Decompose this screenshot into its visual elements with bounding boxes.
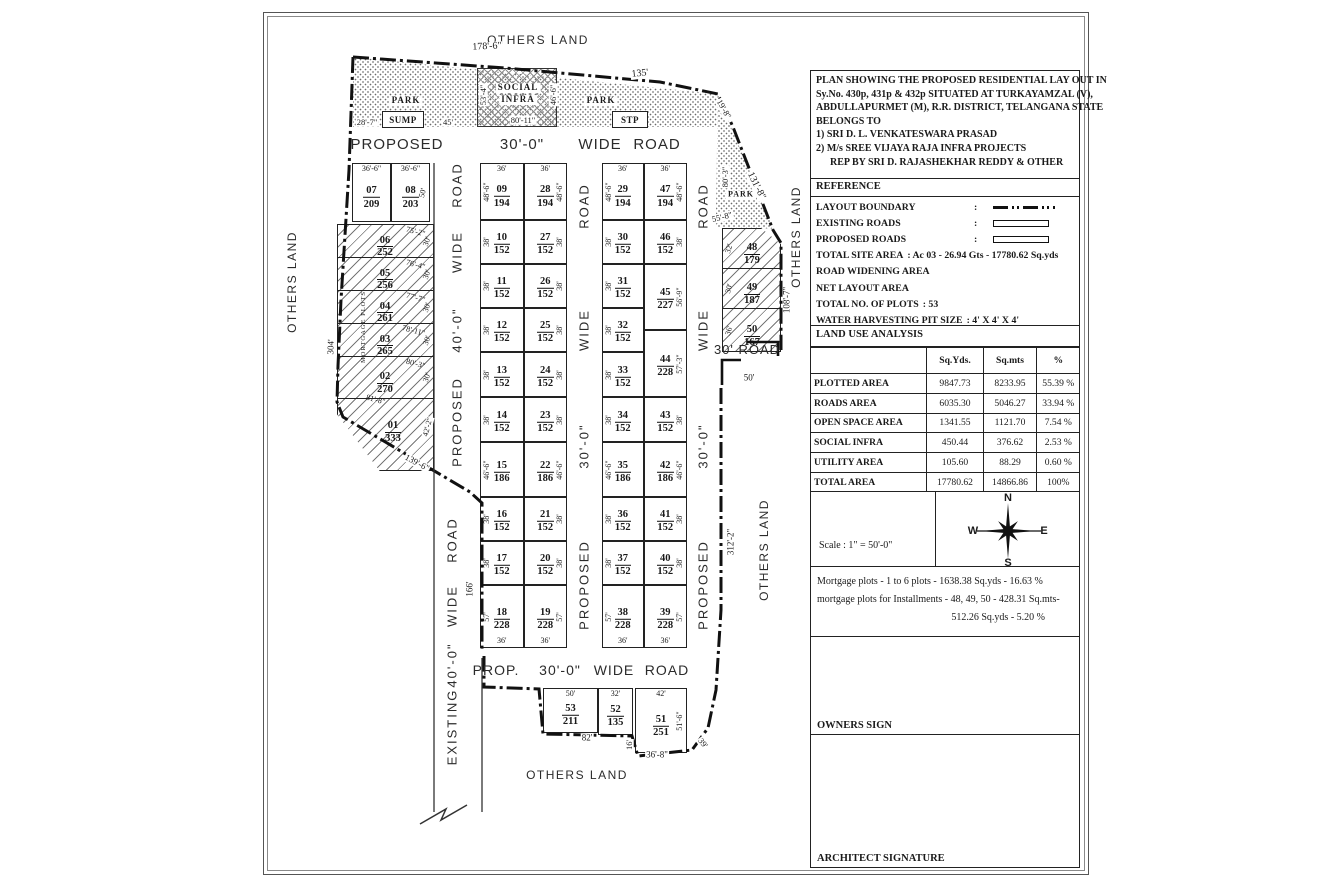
park-label: PARK xyxy=(390,96,423,106)
plot-number: 45 xyxy=(657,287,674,300)
plot-side-dim: 38' xyxy=(676,397,684,443)
plot-number: 36 xyxy=(615,509,632,522)
mortgage-note-line: mortgage plots for Installments - 48, 49… xyxy=(817,591,1073,609)
dimension-label-right-108-7: 108'-7" xyxy=(783,286,792,314)
table-cell: 5046.27 xyxy=(984,394,1037,414)
plot-cell: 2615238' xyxy=(524,264,568,308)
plot-number: 01 xyxy=(385,420,402,433)
reference-item: NET LAYOUT AREA xyxy=(816,280,1074,296)
plot-cell: 1715238' xyxy=(480,541,524,585)
reference-item-label: WATER HARVESTING PIT SIZE xyxy=(816,315,963,326)
architect-signature-section: ARCHITECT SIGNATURE xyxy=(810,735,1080,868)
plot-side-dim: 38' xyxy=(483,263,491,309)
plot-side-dim: 38' xyxy=(556,263,564,309)
road-label-top: WIDE xyxy=(578,136,621,153)
plot-number-area: 53211 xyxy=(544,697,597,727)
plot-number: 12 xyxy=(494,320,511,333)
table-row-label: SOCIAL INFRA xyxy=(811,433,927,453)
plot-number-area: 04261 xyxy=(368,296,402,325)
plot-cell: 3715238' xyxy=(602,541,644,585)
reference-item-value: : Ac 03 - 26.94 Gts - 17780.62 Sq.yds xyxy=(907,250,1058,261)
plot-number: 44 xyxy=(657,353,674,366)
plot-cell: 36'-6"07209 xyxy=(352,163,391,222)
plot-cell: 50'53211 xyxy=(543,688,598,733)
plot-number: 13 xyxy=(494,364,511,377)
plot-number: 38 xyxy=(615,606,632,619)
mortgage-plot-row: 0426177'-7"30' xyxy=(338,291,433,324)
plot-side-dim: 32' xyxy=(723,243,734,254)
plot-cell: 2415238' xyxy=(524,352,568,397)
plot-side-dim: 38' xyxy=(605,263,613,309)
table-cell: 100% xyxy=(1037,473,1080,493)
road-label-right: 30'-0" xyxy=(696,423,711,468)
table-row-label: TOTAL AREA xyxy=(811,473,927,493)
road-label-top: 30'-0" xyxy=(500,136,544,153)
plot-cell: 1315238' xyxy=(480,352,524,397)
dimension-label-si-80-11: 80'-11" xyxy=(510,116,537,125)
plot-side-dim: 38' xyxy=(483,219,491,265)
road-label-left_upper: PROPOSED xyxy=(450,377,465,467)
mortgage-plot-row: 0525676'-4"30' xyxy=(338,258,433,291)
plot-side-dim: 38' xyxy=(556,307,564,353)
road-label-mid: 30'-0" xyxy=(577,423,592,468)
dimension-label-bottom-16: 16' xyxy=(625,739,634,751)
plot-side-dim: 57' xyxy=(605,594,613,640)
plot-cell: 3822857'36' xyxy=(602,585,644,648)
plot-side-dim: 57'-3" xyxy=(676,341,684,387)
mortgage-note-line: 512.26 Sq.yds - 5.20 % xyxy=(817,609,1073,627)
plot-cell: 3922857'36' xyxy=(644,585,688,648)
table-header-cell: Sq.Yds. xyxy=(927,348,984,374)
plot-number: 27 xyxy=(537,232,554,245)
road-label-left_lower: 40'-0" xyxy=(445,642,460,687)
dimension-label-si-53-4: 53'-4" xyxy=(479,84,488,107)
social-infra-label: SOCIAL xyxy=(496,83,541,93)
plot-area: 261 xyxy=(368,313,402,325)
plot-number: 18 xyxy=(494,606,511,619)
road-label-right: PROPOSED xyxy=(696,540,711,630)
plot-area: 265 xyxy=(368,346,402,358)
plot-side-dim: 38' xyxy=(605,352,613,398)
table-row-label: UTILITY AREA xyxy=(811,453,927,473)
plot-number-area: 06252 xyxy=(368,230,402,259)
plot-cell: 36'4719448'-6" xyxy=(644,163,688,220)
dimension-label-boundary-178-6: 178'-6" xyxy=(471,41,503,53)
plot-side-dim: 46'-6" xyxy=(556,447,564,493)
plot-side-dim: 57' xyxy=(556,594,564,640)
plot-side-dim: 38' xyxy=(483,307,491,353)
plot-cell: 2715238' xyxy=(524,220,568,264)
plot-cell: 3315238' xyxy=(602,352,644,397)
dimension-label-left-304: 304' xyxy=(326,338,336,355)
plot-cell: 1922857'36' xyxy=(524,585,568,648)
plot-area: 187 xyxy=(737,295,767,307)
plot-side-dim: 38' xyxy=(483,540,491,586)
table-row-label: PLOTTED AREA xyxy=(811,374,927,394)
dimension-label-si-46-6: 46'-6" xyxy=(549,84,558,107)
land-use-header: LAND USE ANALYSIS xyxy=(810,326,1080,347)
reference-item: TOTAL SITE AREA: Ac 03 - 26.94 Gts - 177… xyxy=(816,248,1074,264)
plot-side-dim: 38' xyxy=(605,307,613,353)
plot-number: 21 xyxy=(537,509,554,522)
reference-header: REFERENCE xyxy=(810,179,1080,197)
mortgage-plot-row: 0625275'-2"30' xyxy=(338,225,433,258)
plot-cell: 2515238' xyxy=(524,308,568,352)
plot-top-dim: 32' xyxy=(599,690,632,699)
architect-signature-label: ARCHITECT SIGNATURE xyxy=(817,853,945,864)
plot-cell: 1415238' xyxy=(480,397,524,442)
table-cell: 6035.30 xyxy=(927,394,984,414)
plot-cell: 1015238' xyxy=(480,220,524,264)
road-label-top: ROAD xyxy=(633,136,680,153)
road-label-left_upper: 40'-0" xyxy=(450,307,465,352)
plot-number: 37 xyxy=(615,553,632,566)
description-line: 2) M/s SREE VIJAYA RAJA INFRA PROJECTS xyxy=(816,142,1074,156)
plot-side-dim: 38' xyxy=(605,219,613,265)
road-bar-icon xyxy=(993,236,1049,243)
reference-item: PROPOSED ROADS: xyxy=(816,231,1074,247)
dimension-label-sump-45: 45' xyxy=(442,118,454,127)
table-cell: 17780.62 xyxy=(927,473,984,493)
plot-area: 135 xyxy=(599,717,632,729)
table-cell: 1341.55 xyxy=(927,414,984,434)
others-land-label-bottom: OTHERS LAND xyxy=(526,768,628,782)
plot-number: 06 xyxy=(377,235,394,248)
plot-side-dim: 38' xyxy=(483,352,491,398)
road-bar-icon xyxy=(993,220,1049,227)
reference-item-label: NET LAYOUT AREA xyxy=(816,283,909,294)
reference-item: LAYOUT BOUNDARY: xyxy=(816,199,1074,215)
description-line: 1) SRI D. L. VENKATESWARA PRASAD xyxy=(816,128,1074,142)
plot-side-dim: 38' xyxy=(676,496,684,542)
reference-item-label: EXISTING ROADS xyxy=(816,218,974,229)
plot-number: 40 xyxy=(657,553,674,566)
plot-side-dim: 38' xyxy=(676,219,684,265)
mortgage-plot-row: 0227080'-3"30' xyxy=(338,357,433,399)
plot-number: 05 xyxy=(377,268,394,281)
reference-item-label: TOTAL SITE AREA xyxy=(816,250,903,261)
reference-list: LAYOUT BOUNDARY:EXISTING ROADS:PROPOSED … xyxy=(810,197,1080,326)
road-label-bottom: WIDE xyxy=(594,662,635,678)
plot-side-dim: 57' xyxy=(676,594,684,640)
plot-cell: 1215238' xyxy=(480,308,524,352)
stp-box: STP xyxy=(612,111,648,128)
table-cell: 7.54 % xyxy=(1037,414,1080,434)
plot-cell: 2115238' xyxy=(524,497,568,541)
plot-number-area: 48179 xyxy=(737,237,767,266)
reference-item: TOTAL NO. OF PLOTS: 53 xyxy=(816,296,1074,312)
plot-area: 333 xyxy=(376,433,410,445)
plot-number: 25 xyxy=(537,320,554,333)
plot-cell: 3215238' xyxy=(602,308,644,352)
dimension-label-bottom-36-8: 36'-8" xyxy=(645,751,669,760)
reference-item-label: TOTAL NO. OF PLOTS xyxy=(816,299,919,310)
plot-number: 10 xyxy=(494,232,511,245)
reference-item-label: LAYOUT BOUNDARY xyxy=(816,202,974,213)
plot-number: 23 xyxy=(537,409,554,422)
table-cell: 9847.73 xyxy=(927,374,984,394)
plot-side-dim: 38' xyxy=(556,219,564,265)
plot-number: 04 xyxy=(377,301,394,314)
reference-item: EXISTING ROADS: xyxy=(816,215,1074,231)
reference-item-label: PROPOSED ROADS xyxy=(816,234,974,245)
plot-number: 11 xyxy=(494,276,510,289)
plot-side-dim: 48'-6" xyxy=(605,169,613,215)
plot-side-dim: 38' xyxy=(556,496,564,542)
plot-number: 39 xyxy=(657,606,674,619)
plot-side-dim: 38' xyxy=(676,540,684,586)
plot-cell: 4615238' xyxy=(644,220,688,264)
plot-side-dim: 36' xyxy=(723,325,734,336)
road-label-left_lower: ROAD xyxy=(445,517,460,563)
mortgage-plot-row: 0326578'-11"30' xyxy=(338,324,433,357)
plot-number: 26 xyxy=(537,276,554,289)
plot-cell: 3615238' xyxy=(602,497,644,541)
plot-side-dim: 38' xyxy=(483,397,491,443)
plot-number: 53 xyxy=(562,702,579,715)
road-label-top: PROPOSED xyxy=(350,136,443,153)
plot-side-dim: 38' xyxy=(556,397,564,443)
road-label-mid: PROPOSED xyxy=(577,540,592,630)
plot-number-area: 49187 xyxy=(737,277,767,306)
plot-cell: 1115238' xyxy=(480,264,524,308)
title-block-description: PLAN SHOWING THE PROPOSED RESIDENTIAL LA… xyxy=(810,70,1080,179)
plot-number: 16 xyxy=(494,509,511,522)
plot-area: 256 xyxy=(368,280,402,292)
road-label-mid: WIDE xyxy=(577,309,592,351)
plot-side-dim: 38' xyxy=(556,352,564,398)
plot-bottom-dim: 36' xyxy=(525,637,567,646)
others-land-label-left: OTHERS LAND xyxy=(285,231,299,333)
table-cell: 88.29 xyxy=(984,453,1037,473)
plot-cell: 1615238' xyxy=(480,497,524,541)
plot-cell: 32'52135 xyxy=(598,688,633,735)
compass-rose: N S W E xyxy=(971,494,1045,566)
plot-cell: 3015238' xyxy=(602,220,644,264)
plot-side-dim: 46'-6" xyxy=(605,447,613,493)
plot-number: 52 xyxy=(607,704,624,717)
plot-number: 47 xyxy=(657,184,674,197)
plot-slant-dim: 78'-11" xyxy=(401,323,426,338)
table-header-cell: Sq.mts xyxy=(984,348,1037,374)
reference-item-colon: : xyxy=(974,202,977,213)
description-line: PLAN SHOWING THE PROPOSED RESIDENTIAL LA… xyxy=(816,74,1074,88)
description-line: BELONGS TO xyxy=(816,115,1074,129)
table-cell: 8233.95 xyxy=(984,374,1037,394)
plot-side-dim: 38' xyxy=(605,397,613,443)
description-line: Sy.No. 430p, 431p & 432p SITUATED AT TUR… xyxy=(816,88,1074,102)
plot-cell: 4422857'-3" xyxy=(644,330,688,397)
reference-item-label: ROAD WIDENING AREA xyxy=(816,266,930,277)
plot-cell: 36'2819448'-6" xyxy=(524,163,568,220)
reference-item-colon: : xyxy=(974,234,977,245)
plot-side-dim: 38' xyxy=(556,540,564,586)
mortgage-plots-note: MORTGAGE PLOTS xyxy=(361,290,368,364)
plot-number-area: 07209 xyxy=(353,180,390,210)
plot-cell: 36'-6"0820350' xyxy=(391,163,430,222)
plot-number-area: 03265 xyxy=(368,329,402,358)
dashdot-line-icon xyxy=(993,206,1055,209)
social-infra-label: INFRA xyxy=(499,95,537,105)
plot-cell: 42'5125151'-6" xyxy=(635,688,687,753)
plot-number: 20 xyxy=(537,553,554,566)
compass-west-label: W xyxy=(968,525,978,537)
owners-sign-section: OWNERS SIGN xyxy=(810,637,1080,735)
plot-side-dim: 51'-6" xyxy=(676,698,684,744)
installment-plot-row: 4918730' xyxy=(723,269,780,309)
plot-number: 41 xyxy=(657,509,674,522)
plot-cell: 2015238' xyxy=(524,541,568,585)
table-row-label: ROADS AREA xyxy=(811,394,927,414)
plot-number-area: 52135 xyxy=(599,699,632,729)
road-label-bottom: PROP. xyxy=(473,662,520,678)
table-cell: 55.39 % xyxy=(1037,374,1080,394)
table-cell: 33.94 % xyxy=(1037,394,1080,414)
plot-cell: 3115238' xyxy=(602,264,644,308)
dimension-label-park-80-3: 80'-3" xyxy=(721,166,730,189)
plot-cell: 4115238' xyxy=(644,497,688,541)
land-use-table: Sq.Yds.Sq.mts%PLOTTED AREA9847.738233.95… xyxy=(810,347,1080,492)
reference-item: ROAD WIDENING AREA xyxy=(816,264,1074,280)
compass-east-label: E xyxy=(1040,525,1047,537)
plot-side-dim: 56'-9" xyxy=(676,274,684,320)
owners-sign-label: OWNERS SIGN xyxy=(817,720,892,731)
plot-side-dim: 38' xyxy=(483,496,491,542)
plot-number: 34 xyxy=(615,409,632,422)
plot-number: 22 xyxy=(537,459,554,472)
compass-north-label: N xyxy=(1004,492,1012,504)
plot-side-dim: 30' xyxy=(723,283,734,294)
plot-side-dim: 48'-6" xyxy=(676,169,684,215)
road-label-mid: ROAD xyxy=(577,183,592,229)
mortgage-note-line: Mortgage plots - 1 to 6 plots - 1638.38 … xyxy=(817,573,1073,591)
plot-number: 29 xyxy=(615,184,632,197)
plot-number: 50 xyxy=(744,324,761,337)
plot-number-area: 05256 xyxy=(368,263,402,292)
plot-number: 17 xyxy=(494,553,511,566)
dimension-label-right-312-2: 312'-2" xyxy=(727,528,736,556)
plot-cell: 4522756'-9" xyxy=(644,264,688,330)
reference-item-colon: : xyxy=(974,218,977,229)
plot-side-dim: 30' xyxy=(420,372,432,384)
plot-side-dim: 46'-6" xyxy=(483,447,491,493)
table-cell: 376.62 xyxy=(984,433,1037,453)
plot-side-dim: 46'-6" xyxy=(676,447,684,493)
park-label: PARK xyxy=(726,191,756,200)
dimension-label-bottom-82: 82' xyxy=(581,734,594,743)
plot-side-dim: 38' xyxy=(605,496,613,542)
plot-number: 02 xyxy=(377,371,394,384)
reference-item-value: : 4' X 4' X 4' xyxy=(967,315,1020,326)
plot-number: 14 xyxy=(494,409,511,422)
dimension-label-boundary-135: 135' xyxy=(630,68,650,80)
road-label-right: WIDE xyxy=(696,309,711,351)
plot-number: 49 xyxy=(744,282,761,295)
table-cell: 450.44 xyxy=(927,433,984,453)
table-cell: 1121.70 xyxy=(984,414,1037,434)
table-cell: 0.60 % xyxy=(1037,453,1080,473)
plot-side-dim: 38' xyxy=(605,540,613,586)
plot-side-dim: 48'-6" xyxy=(483,169,491,215)
plot-slant-dim: 80'-3" xyxy=(405,357,426,371)
table-header-cell: % xyxy=(1037,348,1080,374)
road-label-left_upper: WIDE xyxy=(450,231,465,273)
compass-star-icon xyxy=(971,494,1045,566)
plot-cell: 3518646'-6" xyxy=(602,442,644,497)
table-header-cell xyxy=(811,348,927,374)
sump-box: SUMP xyxy=(382,111,424,128)
divider xyxy=(935,492,936,566)
table-cell: 14866.86 xyxy=(984,473,1037,493)
reference-item-value: : 53 xyxy=(923,299,939,310)
plot-cell: 1518646'-6" xyxy=(480,442,524,497)
layout-plan-sheet: PLAN SHOWING THE PROPOSED RESIDENTIAL LA… xyxy=(0,0,1341,885)
plot-number: 19 xyxy=(537,606,554,619)
plot-bottom-dim: 36' xyxy=(603,637,643,646)
plot-number: 51 xyxy=(653,713,670,726)
plot-number: 42 xyxy=(657,459,674,472)
plot-number: 33 xyxy=(615,364,632,377)
plot-cell: 36'0919448'-6" xyxy=(480,163,524,220)
mortgage-notes: Mortgage plots - 1 to 6 plots - 1638.38 … xyxy=(810,567,1080,637)
plot-number: 35 xyxy=(615,459,632,472)
plot-bottom-dim: 36' xyxy=(645,637,687,646)
table-cell: 105.60 xyxy=(927,453,984,473)
plot-number: 48 xyxy=(744,242,761,255)
plot-side-dim: 48'-6" xyxy=(556,169,564,215)
road-label-bottom: 30'-0" xyxy=(539,662,581,678)
description-line: ABDULLAPURMET (M), R.R. DISTRICT, TELANG… xyxy=(816,101,1074,115)
plot-number: 43 xyxy=(657,409,674,422)
plot-cell: 2218646'-6" xyxy=(524,442,568,497)
plot-number: 32 xyxy=(615,320,632,333)
plot-cell: 4315238' xyxy=(644,397,688,442)
table-row-label: OPEN SPACE AREA xyxy=(811,414,927,434)
road-label-bottom: ROAD xyxy=(645,662,689,678)
park-label: PARK xyxy=(585,96,618,106)
plot-number: 15 xyxy=(494,459,511,472)
plot-number: 09 xyxy=(494,184,511,197)
plot-area: 209 xyxy=(353,199,390,211)
plot-number: 03 xyxy=(377,334,394,347)
plot-number: 30 xyxy=(615,232,632,245)
plot-cell: 1822857'36' xyxy=(480,585,524,648)
road-label-left_lower: EXISTING xyxy=(445,689,460,766)
road-label-exit: 30' ROAD xyxy=(714,342,780,357)
installment-plots-block: 4817932'4918730'5016736' xyxy=(722,228,781,352)
dimension-label-left-166: 166' xyxy=(466,580,475,597)
plot-bottom-dim: 36' xyxy=(481,637,523,646)
dimension-label-exit-50: 50' xyxy=(743,374,756,383)
plot-area: 179 xyxy=(737,255,767,267)
plot-cell: 4218646'-6" xyxy=(644,442,688,497)
description-line: REP BY SRI D. RAJASHEKHAR REDDY & OTHER xyxy=(816,156,1074,170)
plot-number: 28 xyxy=(537,184,554,197)
plot-number: 31 xyxy=(615,276,632,289)
table-cell: 2.53 % xyxy=(1037,433,1080,453)
plot-cell: 2315238' xyxy=(524,397,568,442)
plot-area: 252 xyxy=(368,247,402,259)
scale-compass-section: Scale : 1" = 50'-0" N S W E xyxy=(810,492,1080,567)
plot-area: 211 xyxy=(544,716,597,728)
road-label-left_upper: ROAD xyxy=(450,162,465,208)
plot-number: 07 xyxy=(363,185,380,198)
plot-number-area: 02270 xyxy=(368,366,402,395)
road-label-right: ROAD xyxy=(696,183,711,229)
plot-side-dim: 57' xyxy=(483,594,491,640)
plot-cell: 4015238' xyxy=(644,541,688,585)
plot-number-area: 01333 xyxy=(376,415,410,444)
